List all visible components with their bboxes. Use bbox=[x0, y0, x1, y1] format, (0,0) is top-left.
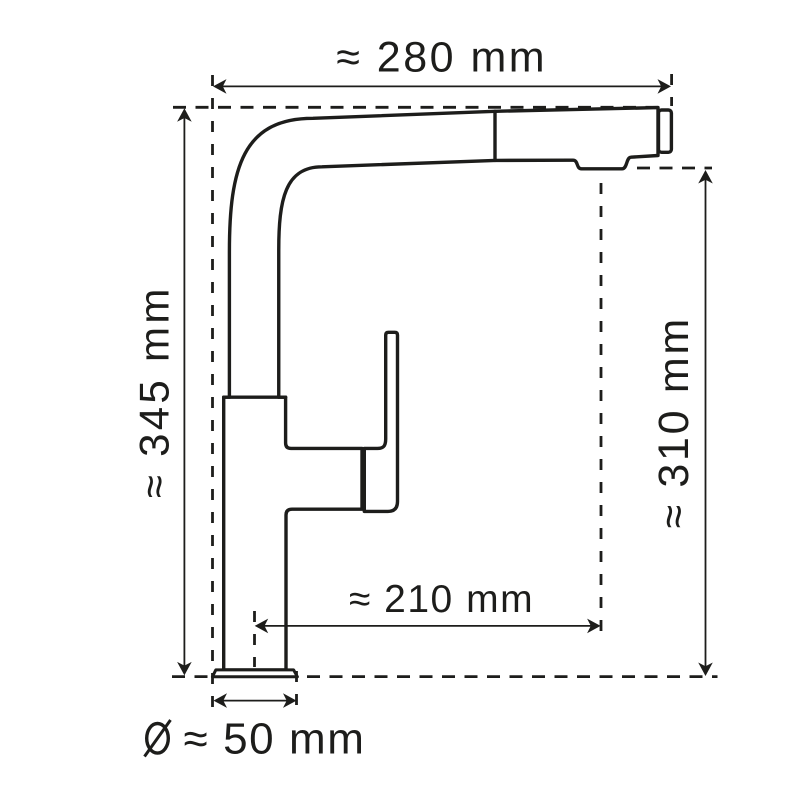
svg-text:≈ 345 mm: ≈ 345 mm bbox=[131, 285, 178, 498]
svg-text:≈ 310 mm: ≈ 310 mm bbox=[650, 316, 698, 528]
svg-text:≈ 280 mm: ≈ 280 mm bbox=[336, 34, 547, 82]
svg-text:≈ 210 mm: ≈ 210 mm bbox=[349, 578, 534, 621]
svg-text:≈ 50 mm: ≈ 50 mm bbox=[184, 715, 366, 764]
